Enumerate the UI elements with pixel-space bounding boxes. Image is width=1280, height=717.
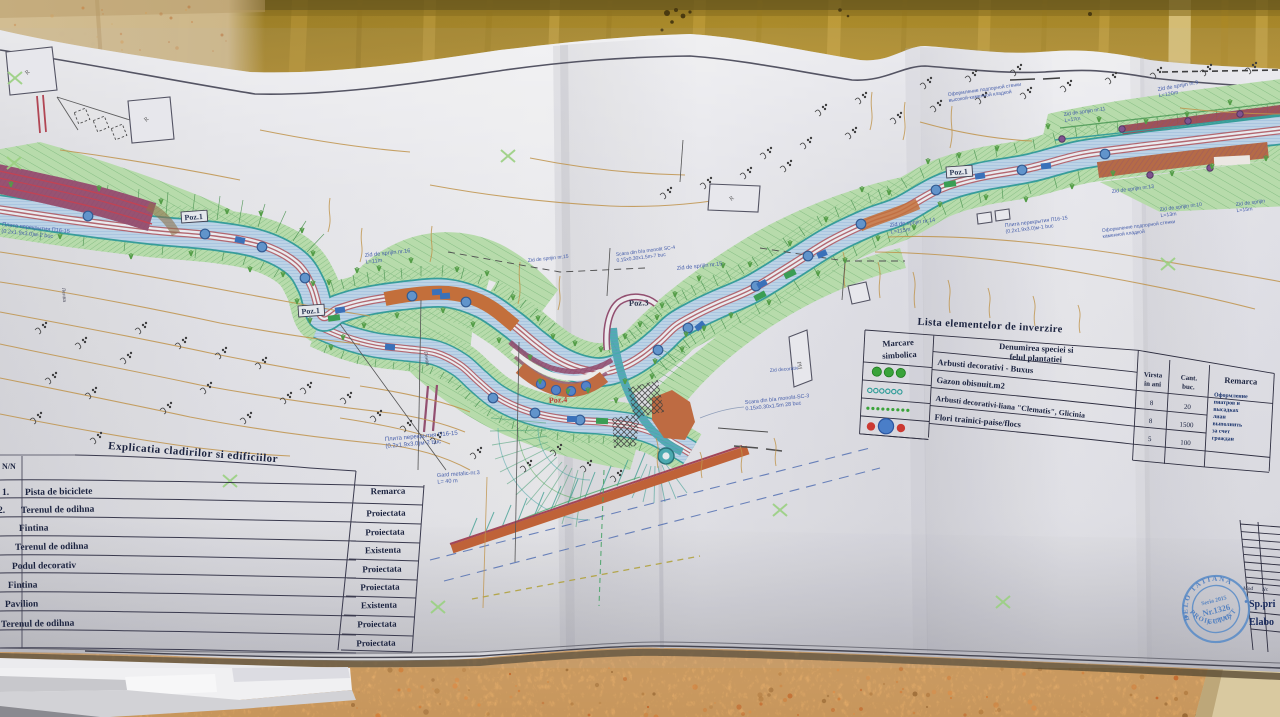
svg-text:Existenta: Existenta xyxy=(365,545,402,556)
svg-text:Elabo: Elabo xyxy=(1249,617,1274,628)
svg-text:Marcare: Marcare xyxy=(882,337,914,349)
svg-text:1500: 1500 xyxy=(1179,421,1194,430)
svg-text:лиан: лиан xyxy=(1213,414,1227,421)
svg-text:Terenul de odihna: Terenul de odihna xyxy=(1,619,75,630)
svg-text:Terenul de odihna: Terenul de odihna xyxy=(15,542,89,553)
svg-text:Fintina: Fintina xyxy=(19,523,49,534)
svg-text:Proiectata: Proiectata xyxy=(357,619,397,630)
svg-text:Podul decorativ: Podul decorativ xyxy=(12,561,77,572)
svg-text:за счет: за счет xyxy=(1212,428,1230,435)
svg-text:Cant.: Cant. xyxy=(1180,374,1197,383)
svg-text:Virsta: Virsta xyxy=(1144,371,1163,380)
svg-text:1.: 1. xyxy=(2,488,9,498)
svg-text:buc.: buc. xyxy=(1182,383,1195,392)
svg-text:Proiectata: Proiectata xyxy=(356,638,396,649)
svg-text:Proiectata: Proiectata xyxy=(366,508,406,519)
svg-text:simbolica: simbolica xyxy=(882,349,918,361)
svg-text:Nr.: Nr. xyxy=(1261,587,1269,593)
svg-text:Remarca: Remarca xyxy=(370,486,405,497)
svg-text:2.: 2. xyxy=(0,506,5,516)
svg-text:Pavilion: Pavilion xyxy=(5,599,39,610)
svg-text:Terenul de odihna: Terenul de odihna xyxy=(21,505,95,516)
svg-text:Proiectata: Proiectata xyxy=(362,564,402,575)
svg-text:Proiectata: Proiectata xyxy=(365,527,405,538)
svg-text:20: 20 xyxy=(1184,403,1192,411)
svg-text:Sp.pri: Sp.pri xyxy=(1249,599,1276,610)
svg-text:Fintina: Fintina xyxy=(8,580,38,591)
svg-text:in ani: in ani xyxy=(1144,380,1161,389)
svg-text:100: 100 xyxy=(1180,439,1191,448)
svg-text:Pista de biciclete: Pista de biciclete xyxy=(25,487,93,498)
svg-text:Existenta: Existenta xyxy=(361,600,398,611)
svg-text:граждан: граждан xyxy=(1212,436,1235,443)
svg-text:Proiectata: Proiectata xyxy=(360,582,400,593)
svg-text:N/N: N/N xyxy=(2,462,16,471)
svg-text:Remarca: Remarca xyxy=(1224,375,1258,387)
